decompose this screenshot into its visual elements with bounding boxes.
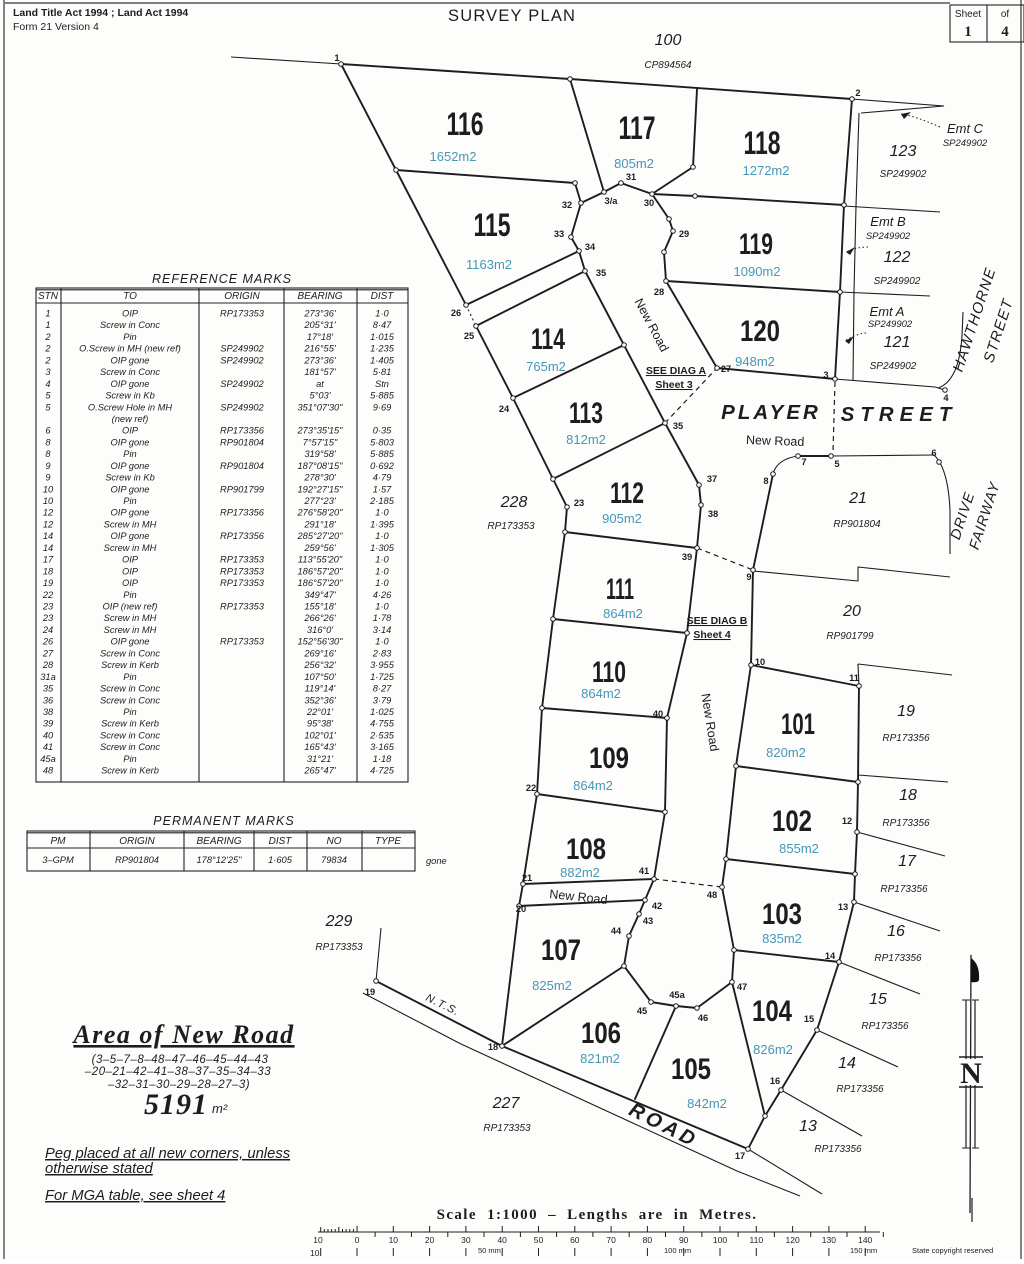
svg-text:ORIGIN: ORIGIN	[119, 836, 155, 847]
svg-text:RP173356: RP173356	[880, 884, 928, 895]
svg-text:111: 111	[606, 573, 634, 606]
svg-text:1: 1	[964, 24, 972, 40]
svg-text:SP249902: SP249902	[874, 276, 921, 287]
svg-text:101: 101	[781, 708, 815, 741]
svg-text:Emt C: Emt C	[947, 121, 984, 136]
svg-text:123: 123	[890, 143, 917, 160]
svg-text:8: 8	[763, 476, 768, 486]
svg-text:820m2: 820m2	[766, 745, 806, 760]
svg-text:Form 21 Version 4: Form 21 Version 4	[13, 21, 99, 33]
svg-text:114: 114	[531, 323, 565, 356]
svg-text:Sheet: Sheet	[955, 9, 981, 20]
svg-text:17: 17	[735, 1151, 745, 1161]
svg-text:110: 110	[750, 1235, 764, 1245]
svg-text:826m2: 826m2	[753, 1042, 793, 1057]
svg-text:35: 35	[673, 421, 683, 431]
svg-text:122: 122	[884, 249, 911, 266]
svg-text:10: 10	[389, 1235, 399, 1245]
svg-text:gone: gone	[426, 856, 447, 866]
svg-text:805m2: 805m2	[614, 156, 654, 171]
svg-text:38: 38	[708, 509, 718, 519]
svg-text:RP901804: RP901804	[833, 519, 881, 530]
svg-text:15: 15	[804, 1014, 814, 1024]
svg-text:SP249902: SP249902	[866, 231, 911, 242]
svg-text:N: N	[960, 1057, 982, 1090]
svg-text:116: 116	[447, 106, 484, 142]
svg-text:24: 24	[499, 404, 510, 414]
svg-text:229: 229	[325, 913, 353, 930]
svg-text:State copyright reserved: State copyright reserved	[912, 1246, 993, 1255]
svg-text:of: of	[1001, 9, 1010, 20]
svg-text:864m2: 864m2	[573, 778, 613, 793]
svg-text:Peg placed at all new corners,: Peg placed at all new corners, unless	[45, 1146, 291, 1162]
svg-text:TYPE: TYPE	[375, 836, 401, 847]
svg-text:102: 102	[772, 805, 812, 838]
svg-text:RP173356: RP173356	[882, 818, 930, 829]
svg-text:Land Title Act 1994 ; Land Ac: Land Title Act 1994 ; Land Act 1994	[13, 7, 188, 19]
svg-text:27: 27	[721, 364, 731, 374]
svg-text:825m2: 825m2	[532, 978, 572, 993]
svg-text:10: 10	[313, 1235, 323, 1245]
svg-text:45a: 45a	[669, 990, 685, 1000]
svg-text:118: 118	[744, 125, 781, 161]
svg-text:Sheet 4: Sheet 4	[693, 629, 731, 641]
svg-text:14: 14	[838, 1055, 856, 1072]
svg-text:Area of New Road: Area of New Road	[71, 1020, 294, 1049]
svg-text:109: 109	[589, 742, 629, 775]
svg-text:RP901799: RP901799	[826, 631, 874, 642]
svg-text:107: 107	[541, 934, 581, 967]
svg-text:SEE DIAG B: SEE DIAG B	[687, 615, 748, 627]
svg-text:50 mm: 50 mm	[478, 1246, 501, 1255]
svg-text:22: 22	[526, 783, 536, 793]
svg-text:18: 18	[488, 1042, 498, 1052]
svg-text:110: 110	[592, 656, 626, 689]
svg-text:40: 40	[653, 709, 663, 719]
svg-text:16: 16	[887, 923, 905, 940]
svg-text:33: 33	[554, 229, 564, 239]
svg-text:23: 23	[574, 498, 584, 508]
svg-text:2: 2	[855, 88, 860, 98]
svg-text:19: 19	[897, 703, 915, 720]
svg-text:RP173356: RP173356	[882, 733, 930, 744]
svg-text:60: 60	[570, 1235, 580, 1245]
svg-text:30: 30	[461, 1235, 471, 1245]
svg-text:31: 31	[626, 172, 636, 182]
svg-text:PM: PM	[51, 836, 67, 847]
svg-text:20: 20	[516, 904, 526, 914]
svg-text:STN: STN	[38, 291, 59, 302]
svg-text:3–GPM: 3–GPM	[42, 855, 74, 865]
svg-text:842m2: 842m2	[687, 1096, 727, 1111]
svg-text:37: 37	[707, 474, 717, 484]
svg-text:12: 12	[842, 816, 852, 826]
svg-text:RP173356: RP173356	[814, 1144, 862, 1155]
svg-text:21: 21	[522, 873, 532, 883]
svg-text:17: 17	[898, 853, 917, 870]
svg-text:1652m2: 1652m2	[430, 149, 477, 164]
svg-text:SP249902: SP249902	[868, 319, 913, 330]
svg-text:DIST: DIST	[269, 836, 293, 847]
svg-text:90: 90	[679, 1235, 689, 1245]
svg-text:120: 120	[740, 315, 780, 348]
svg-text:11: 11	[849, 673, 859, 683]
svg-text:PERMANENT MARKS: PERMANENT MARKS	[153, 814, 294, 828]
svg-text:3: 3	[823, 370, 828, 380]
svg-text:35: 35	[596, 268, 606, 278]
svg-text:10: 10	[310, 1248, 320, 1258]
svg-text:835m2: 835m2	[762, 931, 802, 946]
svg-text:–20–21–42–41–38–37–35–34–33: –20–21–42–41–38–37–35–34–33	[84, 1066, 271, 1078]
svg-text:228: 228	[500, 494, 528, 511]
svg-text:otherwise stated: otherwise stated	[45, 1161, 154, 1177]
svg-text:NO: NO	[327, 836, 342, 847]
svg-text:RP173356: RP173356	[836, 1084, 884, 1095]
svg-text:RP173353: RP173353	[315, 942, 363, 953]
svg-text:21: 21	[848, 490, 867, 507]
svg-text:100: 100	[713, 1235, 727, 1245]
svg-text:SP249902: SP249902	[943, 138, 988, 149]
svg-text:5191: 5191	[144, 1088, 208, 1121]
svg-text:6: 6	[931, 448, 936, 458]
svg-text:41: 41	[639, 866, 649, 876]
svg-text:10: 10	[755, 657, 765, 667]
svg-text:RP173353: RP173353	[487, 521, 535, 532]
svg-text:30: 30	[644, 198, 654, 208]
svg-text:103: 103	[762, 898, 802, 931]
svg-text:178°12'25": 178°12'25"	[197, 855, 243, 865]
svg-text:104: 104	[752, 995, 792, 1028]
svg-text:39: 39	[682, 552, 692, 562]
svg-text:106: 106	[581, 1017, 621, 1050]
svg-text:864m2: 864m2	[603, 606, 643, 621]
svg-text:119: 119	[739, 228, 773, 261]
svg-text:3/a: 3/a	[605, 196, 619, 206]
svg-text:26: 26	[451, 308, 461, 318]
svg-text:7: 7	[801, 457, 806, 467]
svg-text:SP249902: SP249902	[870, 361, 917, 372]
svg-text:4: 4	[943, 393, 949, 403]
svg-text:50: 50	[534, 1235, 544, 1245]
svg-text:20: 20	[842, 603, 861, 620]
svg-text:15: 15	[869, 991, 887, 1008]
svg-text:1090m2: 1090m2	[734, 264, 781, 279]
svg-text:Emt A: Emt A	[870, 304, 905, 319]
svg-text:ORIGIN: ORIGIN	[224, 291, 260, 302]
svg-text:RP901804: RP901804	[115, 855, 159, 865]
svg-text:REFERENCE MARKS: REFERENCE MARKS	[152, 272, 292, 286]
svg-text:4: 4	[1001, 24, 1009, 40]
svg-text:47: 47	[737, 982, 747, 992]
svg-text:14: 14	[825, 951, 836, 961]
svg-text:150 mm: 150 mm	[850, 1246, 877, 1255]
svg-text:100: 100	[655, 32, 682, 49]
svg-text:855m2: 855m2	[779, 841, 819, 856]
svg-text:46: 46	[698, 1013, 708, 1023]
svg-text:13: 13	[838, 902, 848, 912]
svg-text:882m2: 882m2	[560, 865, 600, 880]
svg-text:1: 1	[334, 53, 339, 63]
svg-text:44: 44	[611, 926, 622, 936]
svg-text:32: 32	[562, 200, 572, 210]
svg-text:5: 5	[834, 459, 839, 469]
svg-text:Sheet 3: Sheet 3	[655, 379, 693, 391]
svg-text:117: 117	[619, 110, 656, 146]
svg-text:16: 16	[770, 1076, 780, 1086]
svg-text:864m2: 864m2	[581, 686, 621, 701]
svg-text:1·605: 1·605	[268, 855, 293, 865]
svg-text:108: 108	[566, 833, 606, 866]
svg-text:20: 20	[425, 1235, 435, 1245]
svg-text:9: 9	[746, 572, 751, 582]
svg-text:New Road: New Road	[746, 433, 805, 449]
svg-text:RP173353: RP173353	[483, 1123, 531, 1134]
svg-text:227: 227	[492, 1095, 521, 1112]
svg-text:Emt B: Emt B	[870, 214, 906, 229]
svg-text:43: 43	[643, 916, 653, 926]
svg-text:80: 80	[643, 1235, 653, 1245]
svg-text:BEARING: BEARING	[297, 291, 342, 302]
svg-text:BEARING: BEARING	[196, 836, 241, 847]
svg-text:70: 70	[606, 1235, 616, 1245]
svg-text:29: 29	[679, 229, 689, 239]
svg-text:130: 130	[822, 1235, 836, 1245]
svg-text:40: 40	[497, 1235, 507, 1245]
svg-text:812m2: 812m2	[566, 432, 606, 447]
svg-text:113: 113	[569, 397, 603, 430]
svg-text:PLAYER: PLAYER	[721, 401, 821, 424]
svg-text:STREET: STREET	[841, 403, 958, 426]
svg-text:SP249902: SP249902	[880, 169, 927, 180]
svg-text:SEE DIAG A: SEE DIAG A	[646, 365, 707, 377]
svg-text:121: 121	[884, 334, 911, 351]
svg-text:905m2: 905m2	[602, 511, 642, 526]
svg-text:100 mm: 100 mm	[664, 1246, 691, 1255]
svg-text:105: 105	[671, 1053, 711, 1086]
svg-text:79834: 79834	[321, 855, 347, 865]
svg-text:28: 28	[654, 287, 664, 297]
svg-text:120: 120	[786, 1235, 800, 1245]
svg-text:19: 19	[365, 987, 375, 997]
svg-text:45: 45	[637, 1006, 647, 1016]
svg-text:13: 13	[799, 1118, 817, 1135]
svg-text:821m2: 821m2	[580, 1051, 620, 1066]
svg-text:For MGA table, see sheet 4: For MGA table, see sheet 4	[45, 1188, 225, 1204]
svg-text:115: 115	[474, 207, 511, 243]
svg-text:765m2: 765m2	[526, 359, 566, 374]
svg-text:1272m2: 1272m2	[743, 163, 790, 178]
svg-text:m²: m²	[212, 1101, 228, 1116]
svg-text:DIST: DIST	[371, 291, 395, 302]
svg-text:(3–5–7–8–48–47–46–45–44–43: (3–5–7–8–48–47–46–45–44–43	[92, 1054, 269, 1066]
svg-text:1163m2: 1163m2	[466, 257, 512, 272]
svg-text:48: 48	[707, 890, 717, 900]
svg-text:RP173356: RP173356	[874, 953, 922, 964]
svg-text:34: 34	[585, 242, 596, 252]
svg-text:42: 42	[652, 901, 662, 911]
svg-text:18: 18	[899, 787, 917, 804]
svg-text:25: 25	[464, 331, 474, 341]
svg-text:948m2: 948m2	[735, 354, 775, 369]
svg-text:RP173356: RP173356	[861, 1021, 909, 1032]
svg-text:140: 140	[858, 1235, 872, 1245]
svg-text:0: 0	[355, 1235, 360, 1245]
svg-text:112: 112	[610, 477, 644, 510]
svg-text:CP894564: CP894564	[644, 60, 692, 71]
svg-text:SURVEY PLAN: SURVEY PLAN	[448, 7, 576, 25]
svg-text:Scale 1:1000 – Lengths are in: Scale 1:1000 – Lengths are in Metres.	[437, 1207, 758, 1223]
svg-text:TO: TO	[123, 291, 137, 302]
